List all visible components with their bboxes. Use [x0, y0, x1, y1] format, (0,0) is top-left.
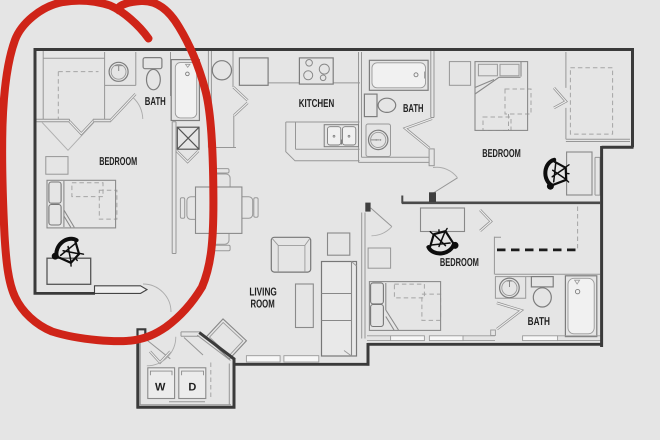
svg-text:W: W — [155, 381, 166, 393]
svg-text:BATH: BATH — [528, 316, 550, 328]
svg-text:ROOM: ROOM — [251, 299, 275, 311]
svg-text:LIVING: LIVING — [249, 287, 277, 299]
svg-text:BEDROOM: BEDROOM — [99, 156, 137, 168]
svg-text:KITCHEN: KITCHEN — [299, 98, 335, 110]
svg-text:BEDROOM: BEDROOM — [440, 257, 479, 269]
svg-text:BATH: BATH — [145, 96, 166, 108]
svg-text:D: D — [188, 381, 196, 393]
svg-text:BEDROOM: BEDROOM — [482, 148, 521, 160]
svg-text:BATH: BATH — [403, 103, 424, 115]
